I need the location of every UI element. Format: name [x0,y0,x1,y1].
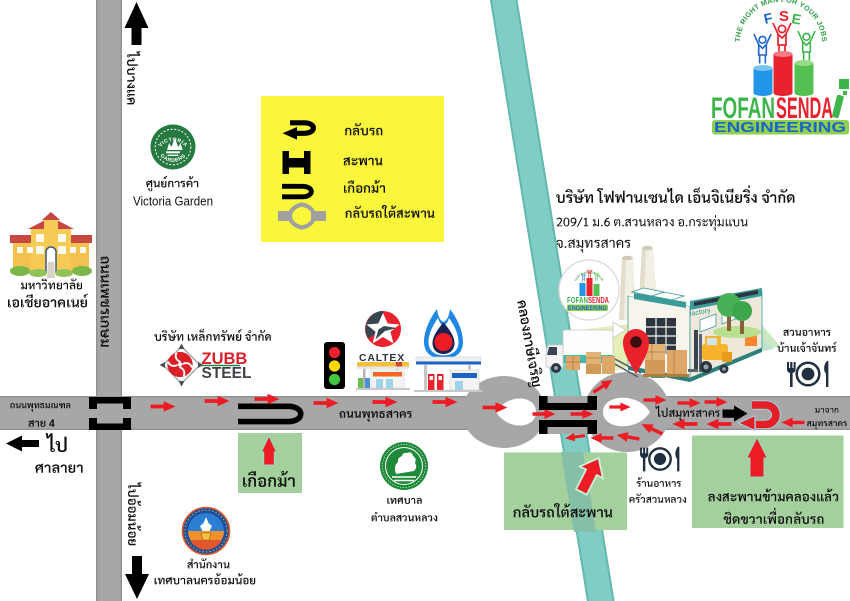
svg-text:S: S [779,8,789,25]
svg-text:ENGINEERING: ENGINEERING [568,306,607,312]
svg-text:FOFAN: FOFAN [567,296,588,305]
svg-text:Victoria Garden: Victoria Garden [133,194,213,209]
svg-text:ENGINEERING: ENGINEERING [714,120,846,136]
svg-text:SENDA: SENDA [588,296,609,305]
svg-text:STEEL: STEEL [202,365,252,382]
